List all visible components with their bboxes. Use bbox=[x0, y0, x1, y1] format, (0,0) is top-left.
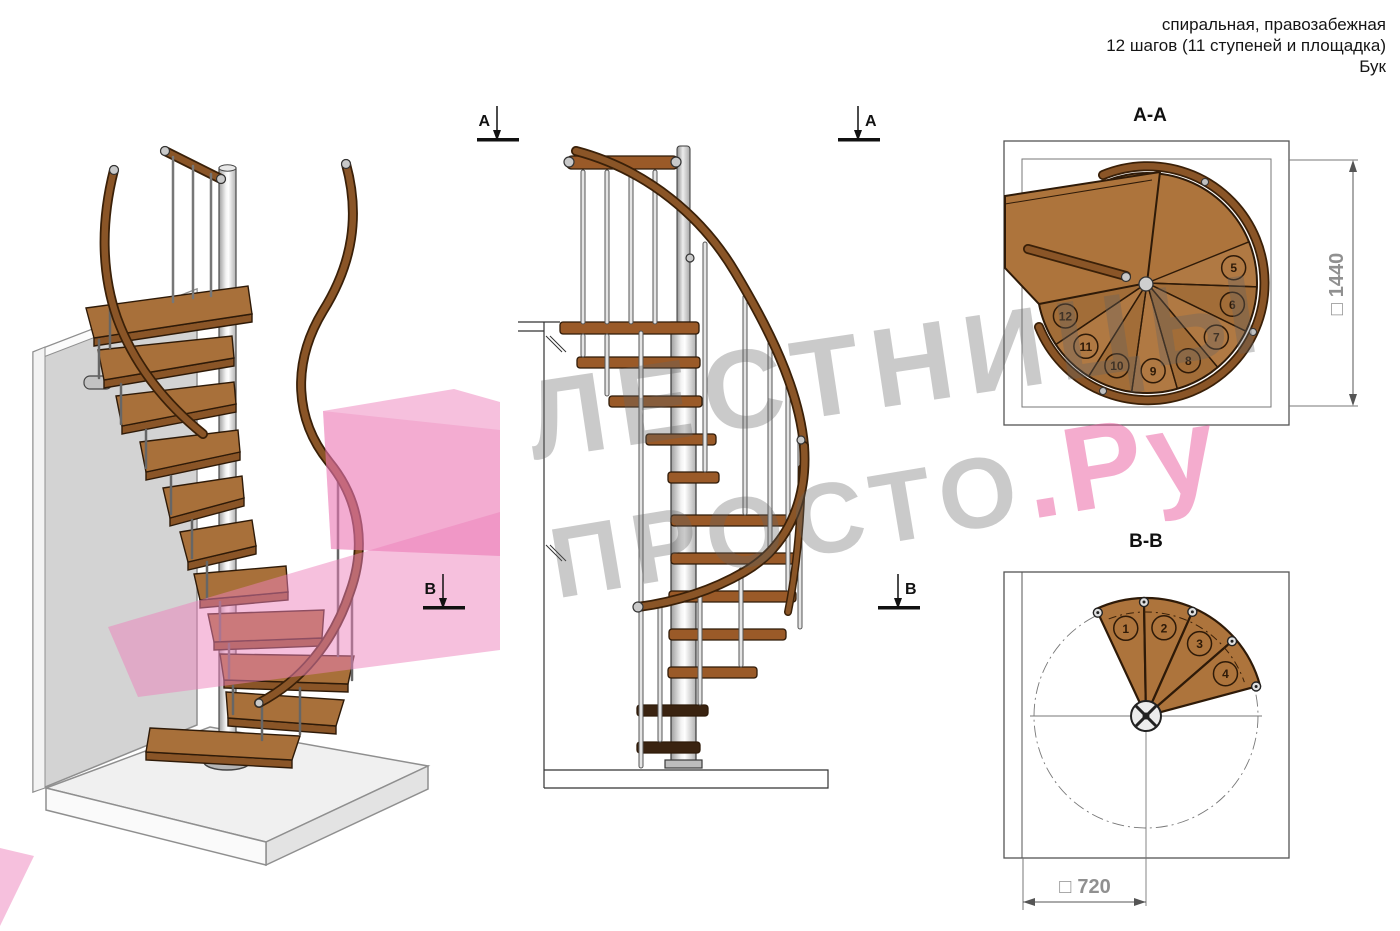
screw-head-dot bbox=[1231, 640, 1234, 643]
section-bb-view: 1234 □720 bbox=[1004, 572, 1289, 910]
screw-head-dot bbox=[1143, 601, 1146, 604]
step-number: 3 bbox=[1196, 637, 1203, 651]
dimension-value: 720 bbox=[1077, 876, 1110, 898]
marker-letter: В bbox=[424, 581, 436, 598]
section-marker-a-left: А bbox=[477, 106, 519, 142]
aa-dimension: □1440 bbox=[1289, 160, 1358, 406]
step-number: 8 bbox=[1185, 354, 1192, 368]
annotation-line-material: Бук bbox=[1106, 56, 1386, 77]
section-bb-title: В-В bbox=[1086, 531, 1206, 553]
section-aa-title: А-А bbox=[1090, 105, 1210, 127]
step-number: 12 bbox=[1059, 309, 1073, 323]
square-section-icon: □ bbox=[1059, 876, 1071, 898]
svg-text:□1440: □1440 bbox=[1326, 253, 1348, 316]
screw-head-dot bbox=[1191, 610, 1194, 613]
step-number: 7 bbox=[1213, 331, 1220, 345]
sheet-annotation: спиральная, правозабежная 12 шагов (11 с… bbox=[1106, 14, 1386, 77]
aa-landing bbox=[1005, 172, 1160, 304]
section-marker-b-right: В bbox=[878, 574, 920, 610]
section-marker-a-right: А bbox=[838, 106, 880, 142]
section-aa-view: 56789101112 □1440 bbox=[1004, 141, 1358, 425]
step-number: 4 bbox=[1222, 667, 1229, 681]
staircase-drawing: А А В В 56789101112 bbox=[0, 0, 1400, 931]
step-number: 10 bbox=[1110, 359, 1124, 373]
marker-letter: А bbox=[478, 113, 490, 130]
bb-dimension: □720 bbox=[1023, 858, 1146, 910]
annotation-line-type: спиральная, правозабежная bbox=[1106, 14, 1386, 35]
step-number: 1 bbox=[1122, 622, 1129, 636]
screw-head-dot bbox=[1255, 685, 1258, 688]
aa-pole-top bbox=[1139, 277, 1153, 291]
screw-head-dot bbox=[1096, 611, 1099, 614]
iso-view bbox=[0, 147, 500, 927]
step-number: 6 bbox=[1229, 298, 1236, 312]
step-number: 9 bbox=[1150, 364, 1157, 378]
marker-letter: В bbox=[905, 581, 917, 598]
step-number: 5 bbox=[1230, 261, 1237, 275]
svg-text:□720: □720 bbox=[1059, 876, 1110, 898]
marker-letter: А bbox=[865, 113, 877, 130]
step-number: 2 bbox=[1161, 621, 1168, 635]
bb-stair-plan: 1234 bbox=[1093, 598, 1260, 716]
square-section-icon: □ bbox=[1326, 303, 1348, 315]
drawing-sheet: А А В В 56789101112 bbox=[0, 0, 1400, 931]
step-number: 11 bbox=[1080, 340, 1093, 354]
annotation-line-steps: 12 шагов (11 ступеней и площадка) bbox=[1106, 35, 1386, 56]
dimension-value: 1440 bbox=[1326, 253, 1348, 298]
step-wedge bbox=[1096, 598, 1146, 716]
bb-center-pole bbox=[1131, 701, 1161, 731]
